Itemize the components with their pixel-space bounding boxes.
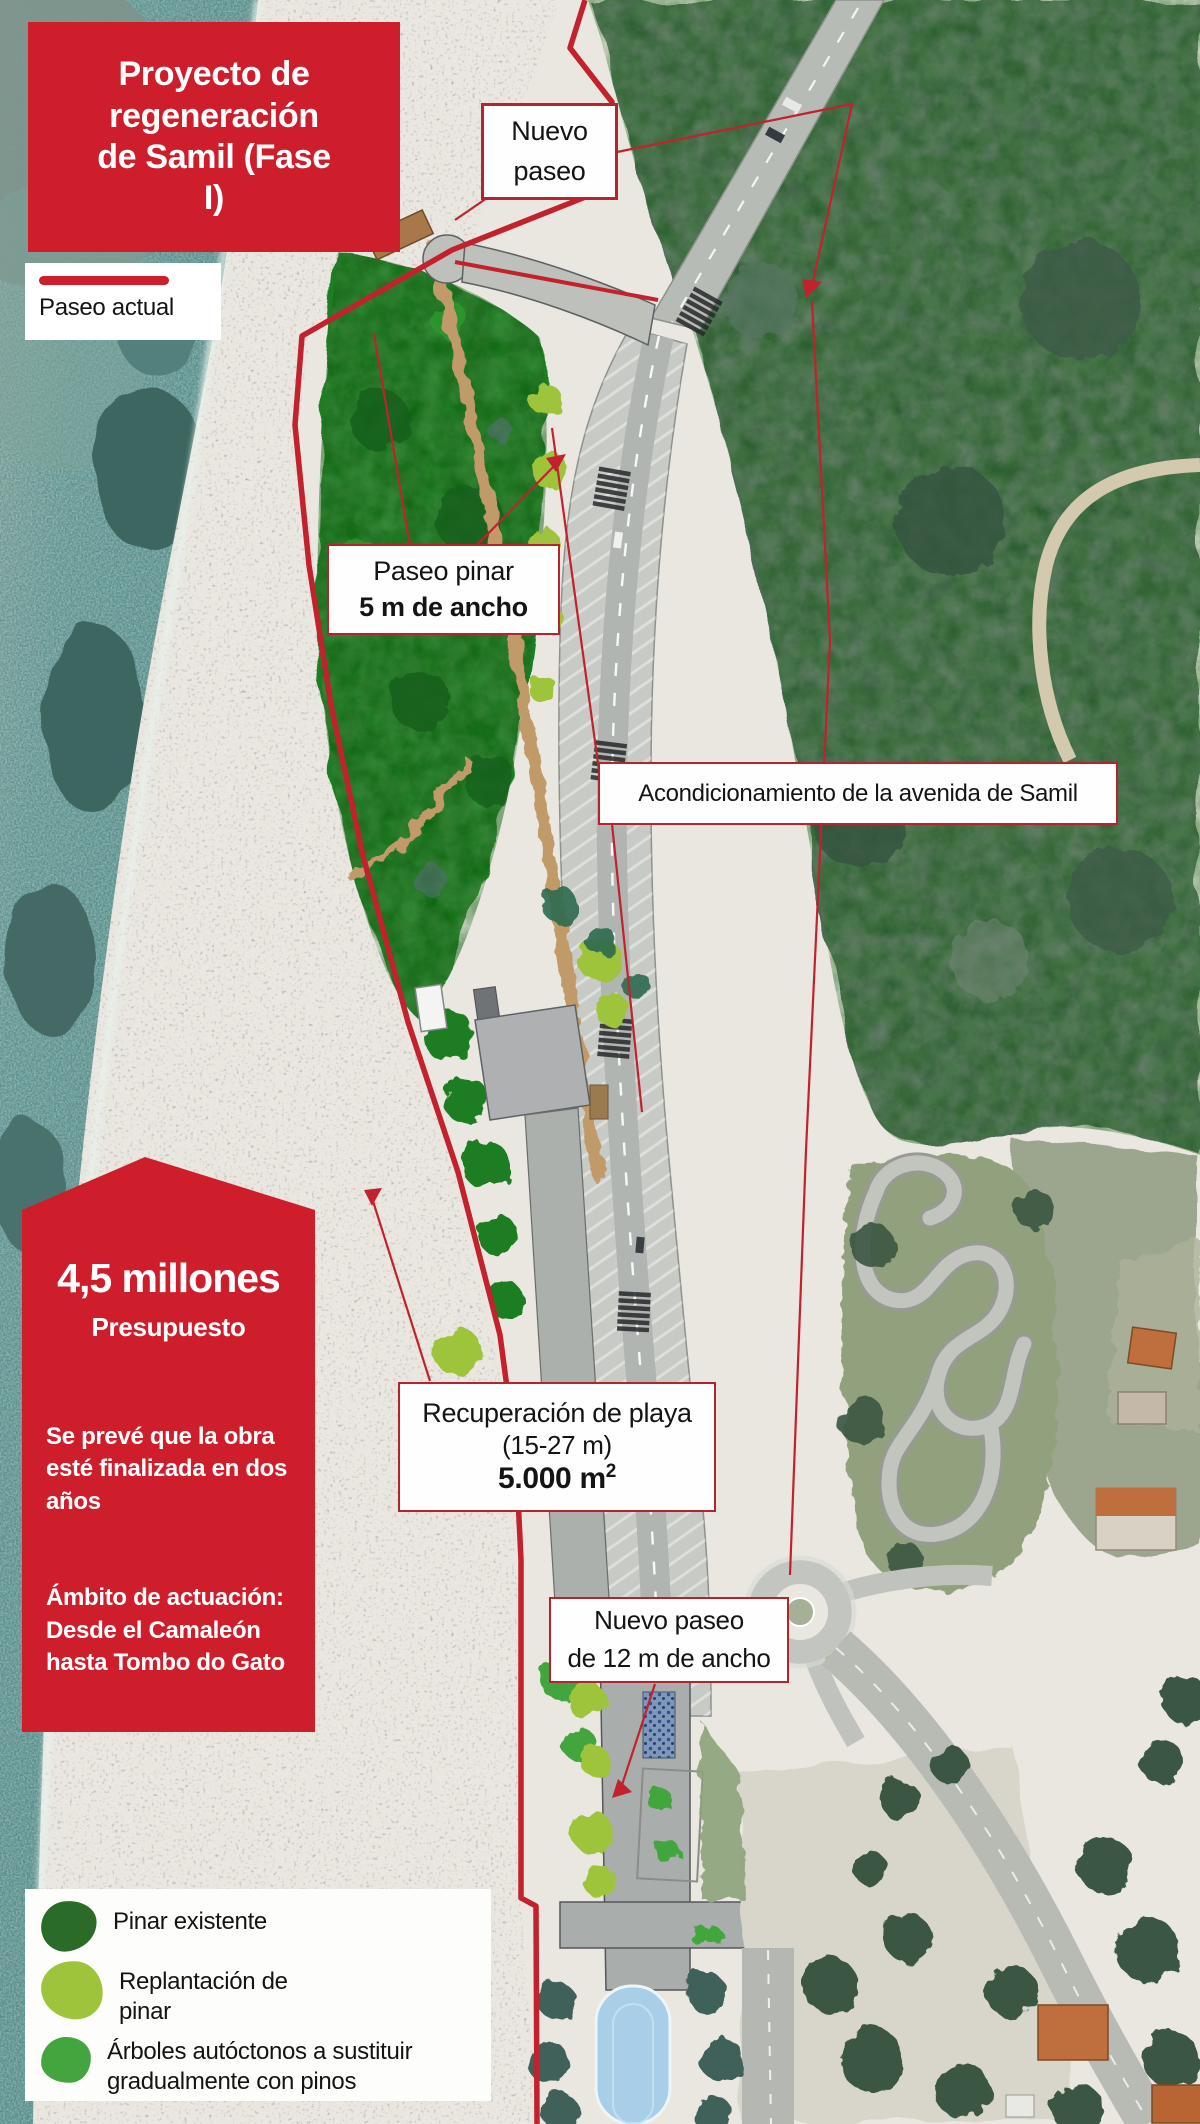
callout-nuevo-paseo: Nuevo paseo xyxy=(481,103,618,200)
callout-nuevo-paseo-text: Nuevo paseo xyxy=(484,112,615,190)
karting-track xyxy=(838,1155,1058,1590)
budget-amount-label: Presupuesto xyxy=(22,1312,315,1343)
budget-box: 4,5 millones Presupuesto Se prevé que la… xyxy=(22,1157,315,1732)
callout-recuperacion-area: 5.000 m2 xyxy=(498,1461,616,1497)
arboles-autoctonos-swatch xyxy=(39,2035,92,2084)
callout-nuevo-paseo-12: Nuevo paseo de 12 m de ancho xyxy=(549,1597,789,1683)
legend-item-pinar-existente: Pinar existente xyxy=(41,1901,475,1951)
callout-np12-line1: Nuevo paseo xyxy=(594,1602,744,1640)
callout-avenida: Acondicionamiento de la avenida de Samil xyxy=(598,762,1118,825)
legend-label: Pinar existente xyxy=(113,1901,267,1937)
infographic-title: Proyecto de regeneración de Samil (Fase … xyxy=(28,22,400,252)
budget-amount: 4,5 millones xyxy=(22,1255,315,1302)
area-value: 5.000 m xyxy=(498,1462,606,1495)
tree-legend: Pinar existente Replantación de pinar Ár… xyxy=(25,1889,491,2101)
legend-label: Árboles autóctonos a sustituir gradualme… xyxy=(107,2037,459,2097)
callout-paseo-pinar: Paseo pinar 5 m de ancho xyxy=(327,544,560,635)
legend-item-replantacion: Replantación de pinar xyxy=(41,1961,475,2027)
swimming-pool xyxy=(596,1986,670,2124)
callout-paseo-pinar-line1: Paseo pinar xyxy=(373,554,514,589)
current-path-line-swatch xyxy=(39,276,169,285)
callout-recuperacion: Recuperación de playa (15-27 m) 5.000 m2 xyxy=(398,1382,716,1512)
legend-item-arboles-autoctonos: Árboles autóctonos a sustituir gradualme… xyxy=(41,2037,475,2097)
callout-paseo-pinar-line2: 5 m de ancho xyxy=(359,590,528,625)
pinar-existente-swatch xyxy=(38,1897,100,1954)
callout-np12-line2: de 12 m de ancho xyxy=(567,1640,770,1678)
budget-scope: Ámbito de actuación: Desde el Camaleón h… xyxy=(22,1582,315,1679)
current-path-legend: Paseo actual xyxy=(25,263,221,340)
callout-avenida-text: Acondicionamiento de la avenida de Samil xyxy=(638,778,1078,809)
budget-timeline: Se prevé que la obra esté finalizada en … xyxy=(22,1421,315,1518)
replantacion-swatch xyxy=(38,1958,106,2022)
current-path-label: Paseo actual xyxy=(39,294,207,322)
area-sup: 2 xyxy=(606,1461,616,1482)
callout-recuperacion-line2: (15-27 m) xyxy=(502,1430,612,1461)
infographic-stage: Proyecto de regeneración de Samil (Fase … xyxy=(0,0,1200,2124)
legend-label: Replantación de pinar xyxy=(119,1961,289,2027)
callout-recuperacion-line1: Recuperación de playa xyxy=(422,1397,691,1431)
